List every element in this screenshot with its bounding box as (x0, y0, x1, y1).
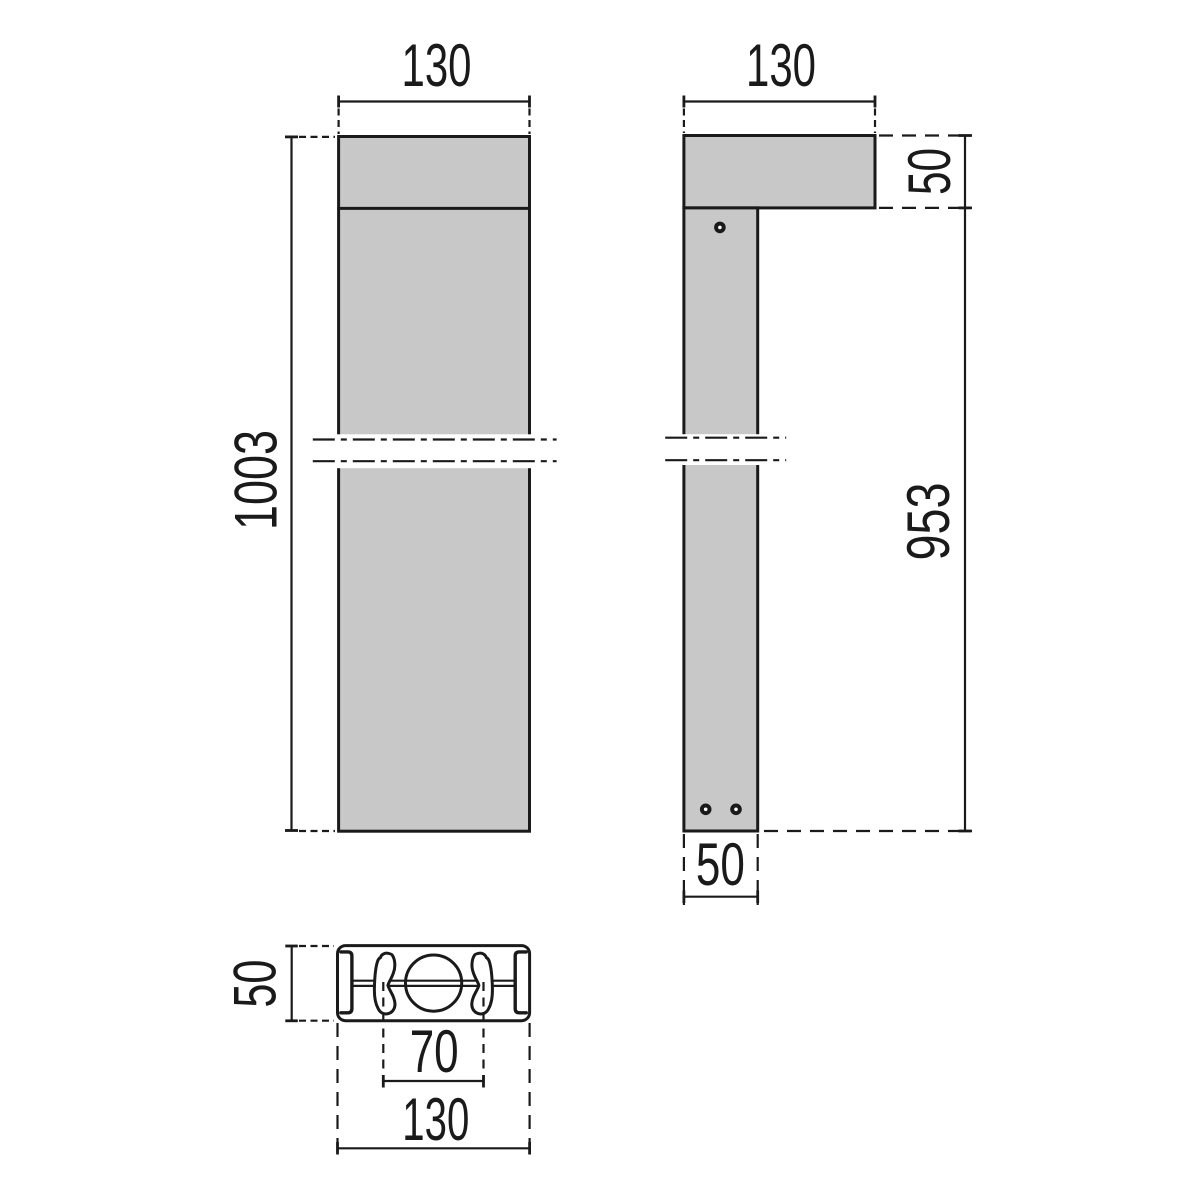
svg-text:50: 50 (896, 148, 963, 195)
svg-text:50: 50 (222, 960, 289, 1008)
svg-text:1003: 1003 (223, 430, 290, 530)
svg-text:130: 130 (402, 1086, 469, 1153)
svg-text:70: 70 (410, 1018, 459, 1085)
svg-text:953: 953 (895, 483, 962, 561)
svg-text:130: 130 (402, 32, 472, 99)
svg-text:50: 50 (696, 831, 745, 898)
svg-text:130: 130 (746, 32, 816, 99)
